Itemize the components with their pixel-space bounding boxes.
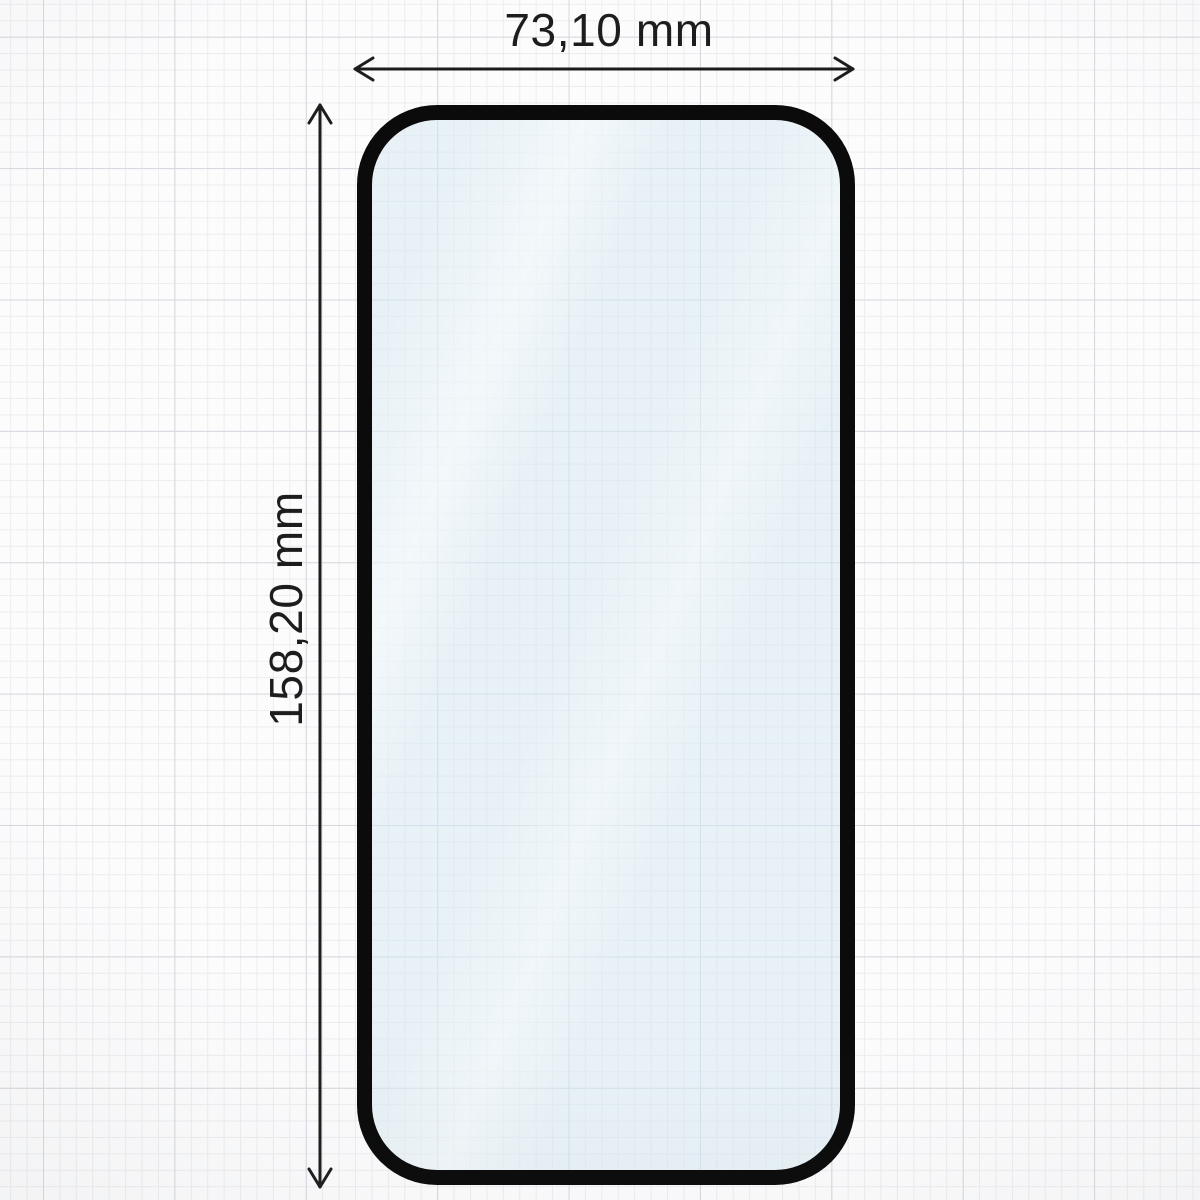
width-dimension-arrow-icon — [351, 49, 857, 89]
screen-protector-glass — [357, 105, 855, 1185]
height-dimension-arrow-icon — [300, 100, 340, 1192]
dimension-diagram: 73,10 mm 158,20 mm — [0, 0, 1200, 1200]
